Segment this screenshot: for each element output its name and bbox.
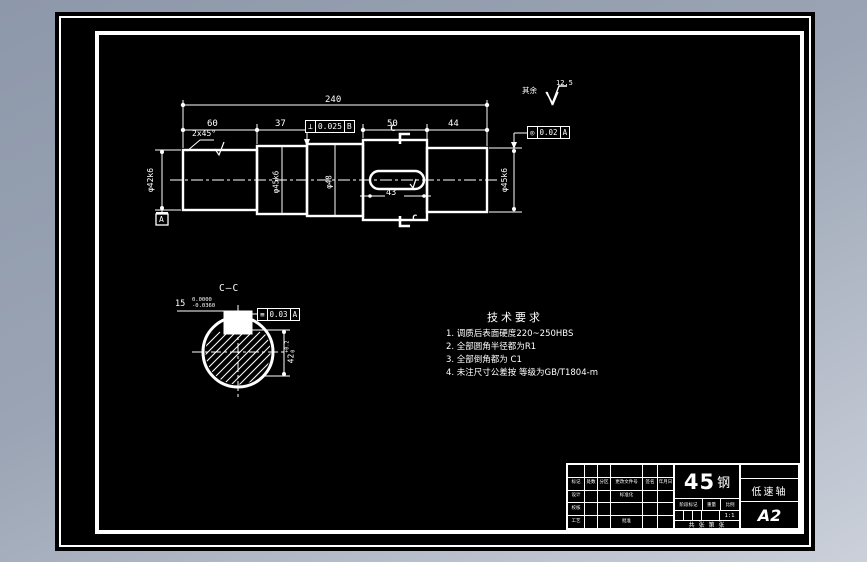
tb-sig-cell: 标准化 xyxy=(611,491,642,503)
dia-seg3-label: φ48 xyxy=(325,175,333,189)
tb-header-cell: 年月日 xyxy=(658,478,673,490)
tb-header-cell: 分区 xyxy=(598,478,610,490)
tb-cell xyxy=(658,465,673,477)
tb-header-cell: 更改文件号 xyxy=(611,478,642,490)
material-cell: 45 钢 xyxy=(675,465,739,498)
tb-sig-cell xyxy=(611,503,642,515)
stage-mark-label: 阶段标记 xyxy=(675,499,702,510)
tb-cell xyxy=(643,465,657,477)
material-number: 45 xyxy=(684,470,715,494)
scale-value: 1:1 xyxy=(720,511,739,520)
dim-seg2: 37 xyxy=(275,120,286,129)
roughness-rest-value: 12.5 xyxy=(556,80,573,87)
tb-cell xyxy=(702,511,719,520)
section-width-nominal: 15 xyxy=(175,300,185,309)
material-suffix: 钢 xyxy=(717,472,730,491)
tech-requirement-item: 1. 调质后表面硬度220~250HBS xyxy=(446,330,573,339)
section-width-lower: -0.0360 xyxy=(192,303,215,309)
tb-sig-cell xyxy=(585,491,597,503)
section-title: C—C xyxy=(219,284,239,294)
title-block-revision-grid: 标记 处数 分区 更改文件号 签名 年月日 设计 标准化 校核 工艺 批准 xyxy=(568,465,673,528)
tb-sig-cell: 设计 xyxy=(568,491,584,503)
drawing-frame-border xyxy=(95,31,804,534)
tb-cell xyxy=(675,511,683,520)
dim-overall-length: 240 xyxy=(325,96,341,105)
cad-viewer-background: 240 60 37 50 44 2x45° 43 C C A φ42k6 φ45… xyxy=(0,0,867,562)
tb-sig-cell xyxy=(598,516,610,528)
tb-sig-cell xyxy=(643,491,657,503)
tb-sig-cell xyxy=(598,503,610,515)
tech-requirement-item: 4. 未注尺寸公差按 等级为GB/T1804-m xyxy=(446,369,598,378)
chamfer-note: 2x45° xyxy=(192,130,216,138)
scale-label: 比例 xyxy=(721,499,739,510)
tb-sig-cell xyxy=(658,503,673,515)
sheet-count-note: 共 张 第 张 xyxy=(675,521,739,528)
roughness-rest-label: 其余 xyxy=(522,87,537,95)
tech-requirement-item: 2. 全部圆角半径都为R1 xyxy=(446,343,536,352)
section-depth-nominal: 42 xyxy=(287,354,295,364)
dim-seg1: 60 xyxy=(207,120,218,129)
fcf-perp-value: 0.025 xyxy=(315,121,344,132)
fcf-conc-value: 0.02 xyxy=(537,127,560,138)
tb-sig-cell xyxy=(658,491,673,503)
fcf-conc-symbol: ◎ xyxy=(528,127,537,138)
tb-sig-cell: 校核 xyxy=(568,503,584,515)
fcf-symm-datum: A xyxy=(290,309,300,320)
tb-cell xyxy=(693,511,701,520)
dia-left-label: φ42k6 xyxy=(147,168,155,192)
tb-header-cell: 签名 xyxy=(643,478,657,490)
tb-sig-cell xyxy=(643,516,657,528)
fcf-conc-datum: A xyxy=(560,127,570,138)
section-depth-lower: 0 xyxy=(291,341,297,353)
tb-cell xyxy=(568,465,584,477)
cut-label-top: C xyxy=(390,125,395,134)
title-block-middle: 45 钢 阶段标记 重量 比例 1:1 共 张 第 张 xyxy=(675,465,739,528)
tb-sig-cell: 工艺 xyxy=(568,516,584,528)
tb-cell xyxy=(684,511,692,520)
tb-sig-cell xyxy=(658,516,673,528)
fcf-symmetry: ≡ 0.03 A xyxy=(257,308,300,321)
tb-header-cell: 处数 xyxy=(585,478,597,490)
tb-cell xyxy=(598,465,610,477)
tb-cell xyxy=(741,465,798,478)
weight-label: 重量 xyxy=(703,499,720,510)
tb-sig-cell xyxy=(585,516,597,528)
fcf-perp-symbol: ⊥ xyxy=(306,121,315,132)
section-depth-dim: 42 +0.2 0 xyxy=(286,341,297,364)
tb-sig-cell: 批准 xyxy=(611,516,642,528)
tb-sig-cell xyxy=(643,503,657,515)
dia-seg2-label: φ45k6 xyxy=(272,171,280,194)
fcf-symm-symbol: ≡ xyxy=(258,309,267,320)
section-width-tolerance: 0.0000 -0.0360 xyxy=(192,297,215,309)
paper-size: A2 xyxy=(741,502,798,528)
fcf-concentricity: ◎ 0.02 A xyxy=(527,126,570,139)
tb-sig-cell xyxy=(598,491,610,503)
title-block: 标记 处数 分区 更改文件号 签名 年月日 设计 标准化 校核 工艺 批准 xyxy=(566,463,800,530)
fcf-perp-datum: B xyxy=(344,121,354,132)
dia-right-label: φ45k6 xyxy=(501,168,509,192)
cut-label-bottom: C xyxy=(412,215,417,224)
tb-cell xyxy=(585,465,597,477)
dim-seg5: 44 xyxy=(448,120,459,129)
part-name: 低速轴 xyxy=(741,479,798,501)
title-block-right: 低速轴 A2 xyxy=(741,465,798,528)
fcf-perpendicularity: ⊥ 0.025 B xyxy=(305,120,355,133)
tb-cell xyxy=(611,465,642,477)
tech-requirements-title: 技术要求 xyxy=(487,312,543,323)
tb-sig-cell xyxy=(585,503,597,515)
tb-header-cell: 标记 xyxy=(568,478,584,490)
dim-keyway-length: 43 xyxy=(386,189,396,198)
tech-requirement-item: 3. 全部倒角都为 C1 xyxy=(446,356,522,365)
datum-a-label: A xyxy=(159,216,164,224)
fcf-symm-value: 0.03 xyxy=(267,309,290,320)
